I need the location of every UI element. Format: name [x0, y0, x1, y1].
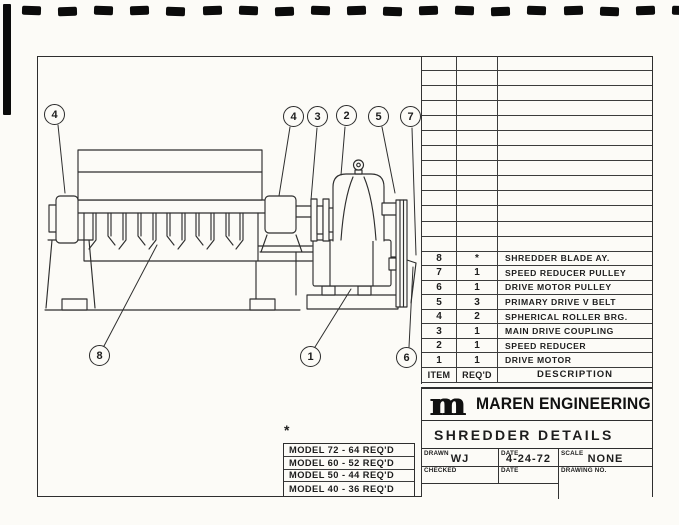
drive-motor: [307, 240, 406, 309]
model-table-note-asterisk: *: [284, 422, 289, 438]
checked-date-cell: DATE: [499, 467, 558, 483]
empty-cell: [422, 222, 457, 236]
empty-cell: [498, 146, 652, 160]
drawing-title: SHREDDER DETAILS: [422, 421, 652, 449]
empty-cell: [498, 131, 652, 145]
bearing-left: [49, 196, 78, 243]
description-header: DESCRIPTION: [498, 368, 652, 382]
req-qty: 3: [457, 295, 498, 309]
item-no: 2: [422, 339, 457, 353]
parts-table-empty-rows: [422, 56, 652, 252]
empty-cell: [457, 131, 498, 145]
parts-row-3: 3 1 MAIN DRIVE COUPLING: [422, 324, 652, 339]
empty-cell: [498, 176, 652, 190]
checked-row: CHECKED DATE: [422, 467, 558, 484]
req-qty: 1: [457, 339, 498, 353]
empty-cell: [422, 146, 457, 160]
date-value: 4-24-72: [499, 453, 558, 465]
title-block: m MAREN ENGINEERING SHREDDER DETAILS DRA…: [421, 387, 652, 497]
parts-table-empty-row: [422, 237, 652, 252]
parts-list-table: 8 * SHREDDER BLADE AY. 7 1 SPEED REDUCER…: [421, 56, 652, 384]
empty-cell: [498, 161, 652, 175]
title-block-empty-strip: [422, 484, 558, 499]
empty-cell: [422, 206, 457, 220]
parts-table-empty-row: [422, 206, 652, 221]
model-row: MODEL 50 - 44 REQ'D: [284, 470, 414, 483]
parts-row-4: 4 2 SPHERICAL ROLLER BRG.: [422, 310, 652, 325]
empty-cell: [422, 161, 457, 175]
empty-cell: [457, 101, 498, 115]
empty-cell: [498, 206, 652, 220]
item-no: 8: [422, 252, 457, 266]
title-block-info-row: DRAWN WJ DATE 4-24-72 SCALE NONE: [422, 449, 652, 467]
scale-cell: SCALE NONE: [559, 449, 652, 466]
part-description: PRIMARY DRIVE V BELT: [498, 295, 652, 309]
drawn-cell: DRAWN WJ: [422, 449, 499, 466]
callout-drive-motor: 1: [300, 346, 321, 367]
item-no: 7: [422, 266, 457, 280]
parts-table-empty-row: [422, 176, 652, 191]
empty-cell: [457, 116, 498, 130]
item-no: 3: [422, 324, 457, 338]
part-description: DRIVE MOTOR PULLEY: [498, 281, 652, 295]
empty-cell: [422, 131, 457, 145]
model-row: MODEL 40 - 36 REQ'D: [284, 482, 414, 495]
empty-cell: [457, 222, 498, 236]
empty-cell: [498, 56, 652, 70]
callout-speed-reducer: 2: [336, 105, 357, 126]
empty-cell: [498, 191, 652, 205]
empty-cell: [457, 176, 498, 190]
parts-table-empty-row: [422, 116, 652, 131]
model-row: MODEL 72 - 64 REQ'D: [284, 444, 414, 457]
callout-shredder-blade: 8: [89, 345, 110, 366]
parts-row-7: 7 1 SPEED REDUCER PULLEY: [422, 266, 652, 281]
item-no: 4: [422, 310, 457, 324]
empty-cell: [422, 237, 457, 251]
req-qty: 2: [457, 310, 498, 324]
model-req-table: MODEL 72 - 64 REQ'D MODEL 60 - 52 REQ'D …: [283, 443, 415, 497]
bearing-right: [265, 196, 296, 233]
empty-cell: [422, 101, 457, 115]
date-cell: DATE 4-24-72: [499, 449, 559, 466]
parts-table-empty-row: [422, 71, 652, 86]
model-row: MODEL 60 - 52 REQ'D: [284, 457, 414, 470]
empty-cell: [457, 56, 498, 70]
title-block-bottom: CHECKED DATE DRAWING NO.: [422, 467, 652, 499]
speed-reducer: [333, 160, 397, 241]
req-qty: 1: [457, 266, 498, 280]
item-no: 5: [422, 295, 457, 309]
empty-cell: [457, 146, 498, 160]
empty-cell: [422, 116, 457, 130]
empty-cell: [457, 237, 498, 251]
parts-table-empty-row: [422, 56, 652, 71]
empty-cell: [457, 71, 498, 85]
empty-cell: [457, 206, 498, 220]
empty-cell: [457, 86, 498, 100]
empty-cell: [422, 191, 457, 205]
company-band: m MAREN ENGINEERING: [422, 389, 652, 421]
shredder-blades: [89, 213, 243, 249]
req-qty: 1: [457, 353, 498, 367]
part-description: SPEED REDUCER: [498, 339, 652, 353]
checked-label: CHECKED: [424, 467, 457, 474]
parts-table-empty-row: [422, 131, 652, 146]
item-header: ITEM: [422, 368, 457, 382]
parts-table-empty-row: [422, 146, 652, 161]
parts-row-6: 6 1 DRIVE MOTOR PULLEY: [422, 281, 652, 296]
parts-table-empty-row: [422, 101, 652, 116]
callout-motor-pulley: 6: [396, 347, 417, 368]
reqd-header: REQ'D: [457, 368, 498, 382]
empty-cell: [457, 191, 498, 205]
parts-row-8: 8 * SHREDDER BLADE AY.: [422, 252, 652, 267]
drawn-value: WJ: [422, 453, 498, 465]
checked-date-column: CHECKED DATE: [422, 467, 559, 499]
empty-cell: [422, 56, 457, 70]
parts-table-empty-row: [422, 222, 652, 237]
callout-coupling: 3: [307, 106, 328, 127]
parts-table-header-row: ITEM REQ'D DESCRIPTION: [422, 368, 652, 383]
callout-bearing-left: 4: [44, 104, 65, 125]
callout-reducer-pulley: 7: [400, 106, 421, 127]
checked-date-label: DATE: [501, 467, 518, 474]
drawing-no-cell: DRAWING NO.: [559, 467, 652, 499]
empty-cell: [498, 237, 652, 251]
scale-value: NONE: [559, 453, 652, 465]
scanned-drawing-page: 4 4 3 2 5 7 8 1 6 8 * SHREDDER BLADE AY.…: [0, 0, 679, 525]
req-qty: *: [457, 252, 498, 266]
part-description: DRIVE MOTOR: [498, 353, 652, 367]
part-description: SPHERICAL ROLLER BRG.: [498, 310, 652, 324]
maren-logo-glyph: m: [430, 393, 466, 416]
req-qty: 1: [457, 281, 498, 295]
empty-cell: [422, 71, 457, 85]
parts-table-empty-row: [422, 161, 652, 176]
part-description: SHREDDER BLADE AY.: [498, 252, 652, 266]
item-no: 6: [422, 281, 457, 295]
parts-table-empty-row: [422, 191, 652, 206]
empty-cell: [422, 86, 457, 100]
empty-cell: [498, 222, 652, 236]
parts-row-5: 5 3 PRIMARY DRIVE V BELT: [422, 295, 652, 310]
empty-cell: [422, 176, 457, 190]
empty-cell: [498, 116, 652, 130]
callout-bearing-right: 4: [283, 106, 304, 127]
parts-row-1: 1 1 DRIVE MOTOR: [422, 353, 652, 368]
empty-cell: [498, 86, 652, 100]
parts-table-empty-row: [422, 86, 652, 101]
empty-cell: [457, 161, 498, 175]
drawing-no-label: DRAWING NO.: [561, 467, 607, 474]
req-qty: 1: [457, 324, 498, 338]
callout-v-belt: 5: [368, 106, 389, 127]
company-name: MAREN ENGINEERING: [476, 395, 651, 414]
checked-cell: CHECKED: [422, 467, 499, 483]
part-description: SPEED REDUCER PULLEY: [498, 266, 652, 280]
parts-row-2: 2 1 SPEED REDUCER: [422, 339, 652, 354]
empty-cell: [498, 101, 652, 115]
empty-cell: [498, 71, 652, 85]
main-drive-coupling: [296, 199, 334, 241]
item-no: 1: [422, 353, 457, 367]
part-description: MAIN DRIVE COUPLING: [498, 324, 652, 338]
